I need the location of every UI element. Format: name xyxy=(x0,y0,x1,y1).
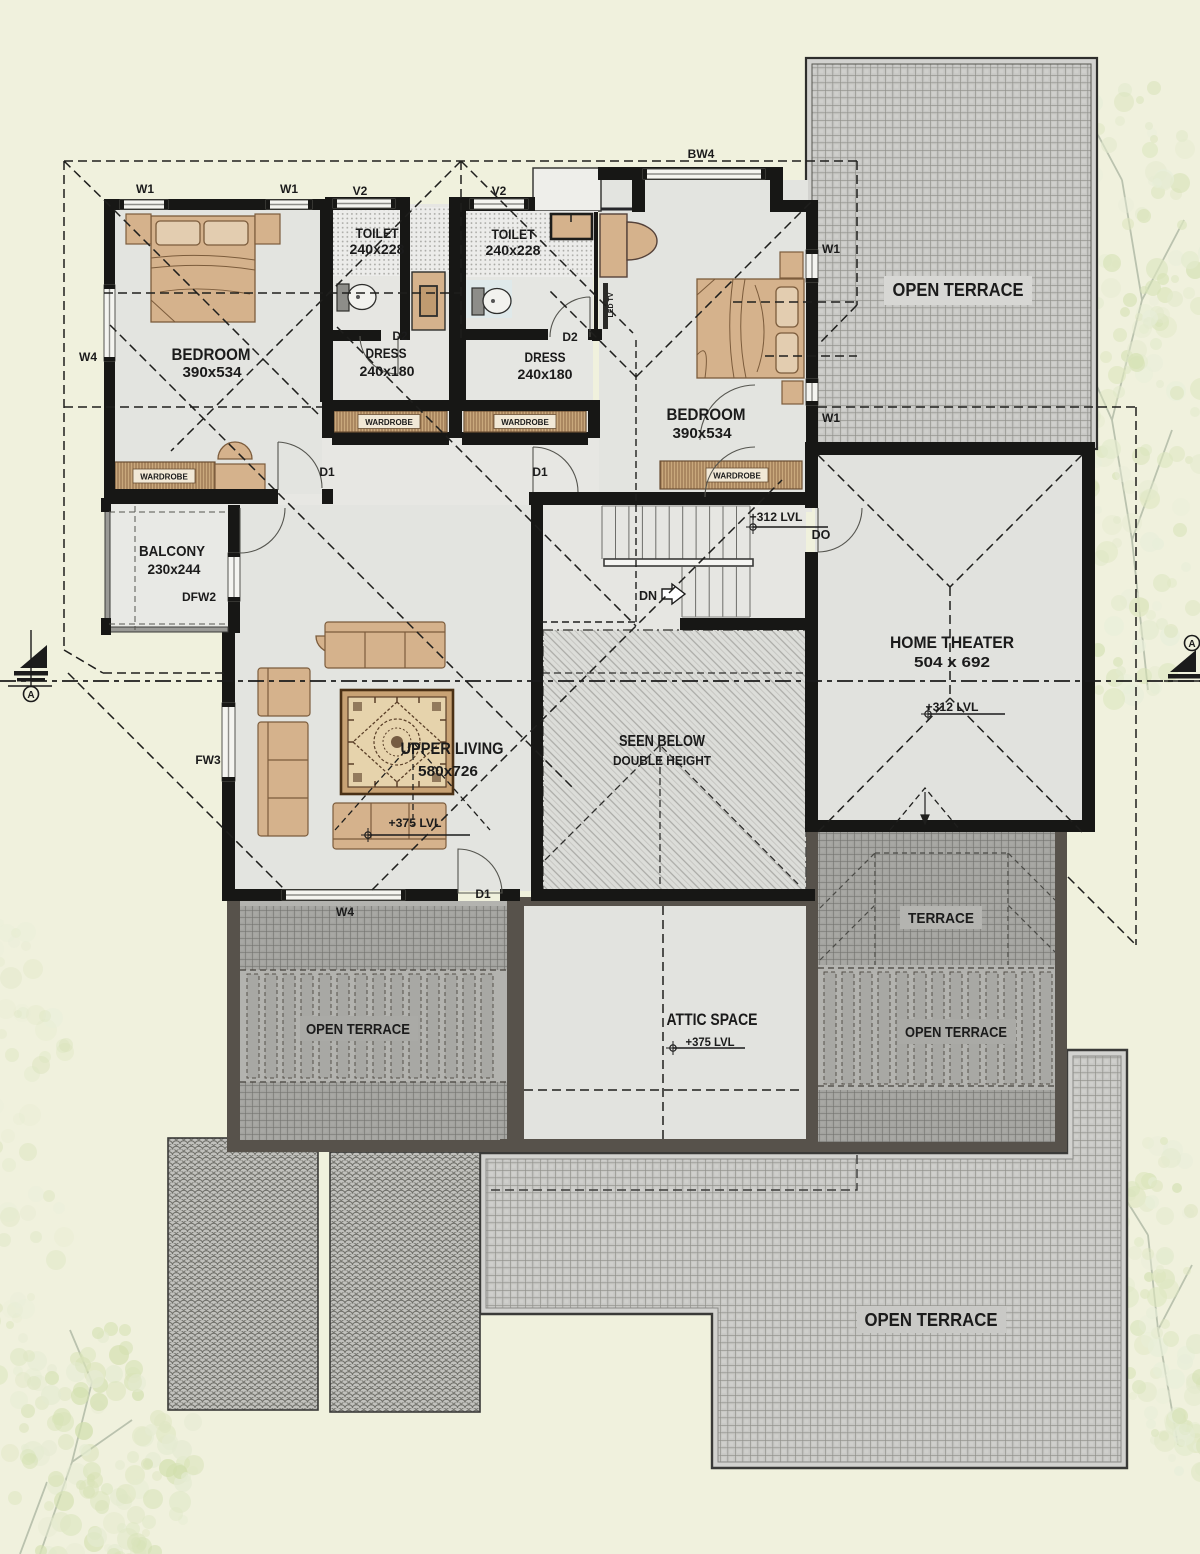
svg-text:+312 LVL: +312 LVL xyxy=(750,510,803,524)
svg-text:WARDROBE: WARDROBE xyxy=(140,473,188,482)
svg-text:240x228: 240x228 xyxy=(486,242,541,258)
svg-text:WARDROBE: WARDROBE xyxy=(365,418,413,427)
svg-text:W1: W1 xyxy=(822,242,840,256)
svg-text:DFW2: DFW2 xyxy=(182,590,216,604)
svg-text:W4: W4 xyxy=(336,905,354,919)
svg-text:HOME THEATER: HOME THEATER xyxy=(890,633,1014,652)
svg-text:OPEN TERRACE: OPEN TERRACE xyxy=(905,1024,1007,1041)
svg-text:240x228: 240x228 xyxy=(350,241,405,257)
svg-text:DRESS: DRESS xyxy=(366,345,407,361)
svg-text:ATTIC SPACE: ATTIC SPACE xyxy=(667,1011,758,1029)
svg-text:D1: D1 xyxy=(319,465,335,479)
svg-text:TOILET: TOILET xyxy=(356,225,399,241)
svg-text:DN: DN xyxy=(639,589,657,603)
svg-text:OPEN TERRACE: OPEN TERRACE xyxy=(306,1021,410,1038)
svg-text:DO: DO xyxy=(812,528,831,542)
svg-text:D2: D2 xyxy=(562,330,578,344)
svg-text:240x180: 240x180 xyxy=(360,363,415,379)
svg-text:504 x 692: 504 x 692 xyxy=(914,654,990,671)
svg-text:A: A xyxy=(27,690,34,701)
svg-text:W4: W4 xyxy=(79,350,97,364)
svg-text:DRESS: DRESS xyxy=(525,349,566,365)
svg-text:OPEN TERRACE: OPEN TERRACE xyxy=(865,1310,998,1330)
svg-text:230x244: 230x244 xyxy=(148,562,201,577)
svg-text:+312 LVL: +312 LVL xyxy=(926,700,979,714)
svg-text:+375 LVL: +375 LVL xyxy=(389,816,442,830)
svg-text:BEDROOM: BEDROOM xyxy=(172,345,251,364)
svg-text:580x726: 580x726 xyxy=(418,763,478,780)
svg-text:390x534: 390x534 xyxy=(673,425,733,442)
svg-text:A: A xyxy=(1188,639,1195,650)
svg-text:D1: D1 xyxy=(532,465,548,479)
svg-text:390x534: 390x534 xyxy=(183,364,243,381)
svg-text:UPPER LIVING: UPPER LIVING xyxy=(401,739,504,758)
svg-text:OPEN TERRACE: OPEN TERRACE xyxy=(893,280,1024,300)
svg-text:TERRACE: TERRACE xyxy=(908,910,974,927)
svg-text:BALCONY: BALCONY xyxy=(139,543,205,560)
svg-text:240x180: 240x180 xyxy=(518,366,573,382)
svg-text:W1: W1 xyxy=(280,182,298,196)
svg-text:V2: V2 xyxy=(353,184,368,198)
svg-text:+375 LVL: +375 LVL xyxy=(686,1037,735,1049)
svg-text:D1: D1 xyxy=(475,887,491,901)
svg-text:WARDROBE: WARDROBE xyxy=(713,472,761,481)
svg-text:BEDROOM: BEDROOM xyxy=(667,405,746,424)
svg-text:W1: W1 xyxy=(136,182,154,196)
svg-text:SEEN BELOW: SEEN BELOW xyxy=(619,733,705,750)
svg-text:W1: W1 xyxy=(822,411,840,425)
svg-text:BW4: BW4 xyxy=(688,147,715,161)
svg-text:TOILET: TOILET xyxy=(492,226,535,242)
svg-text:DOUBLE HEIGHT: DOUBLE HEIGHT xyxy=(613,753,711,768)
svg-text:WARDROBE: WARDROBE xyxy=(501,418,549,427)
svg-text:D2: D2 xyxy=(392,329,408,343)
svg-text:V2: V2 xyxy=(492,184,507,198)
svg-text:FW3: FW3 xyxy=(195,753,221,767)
